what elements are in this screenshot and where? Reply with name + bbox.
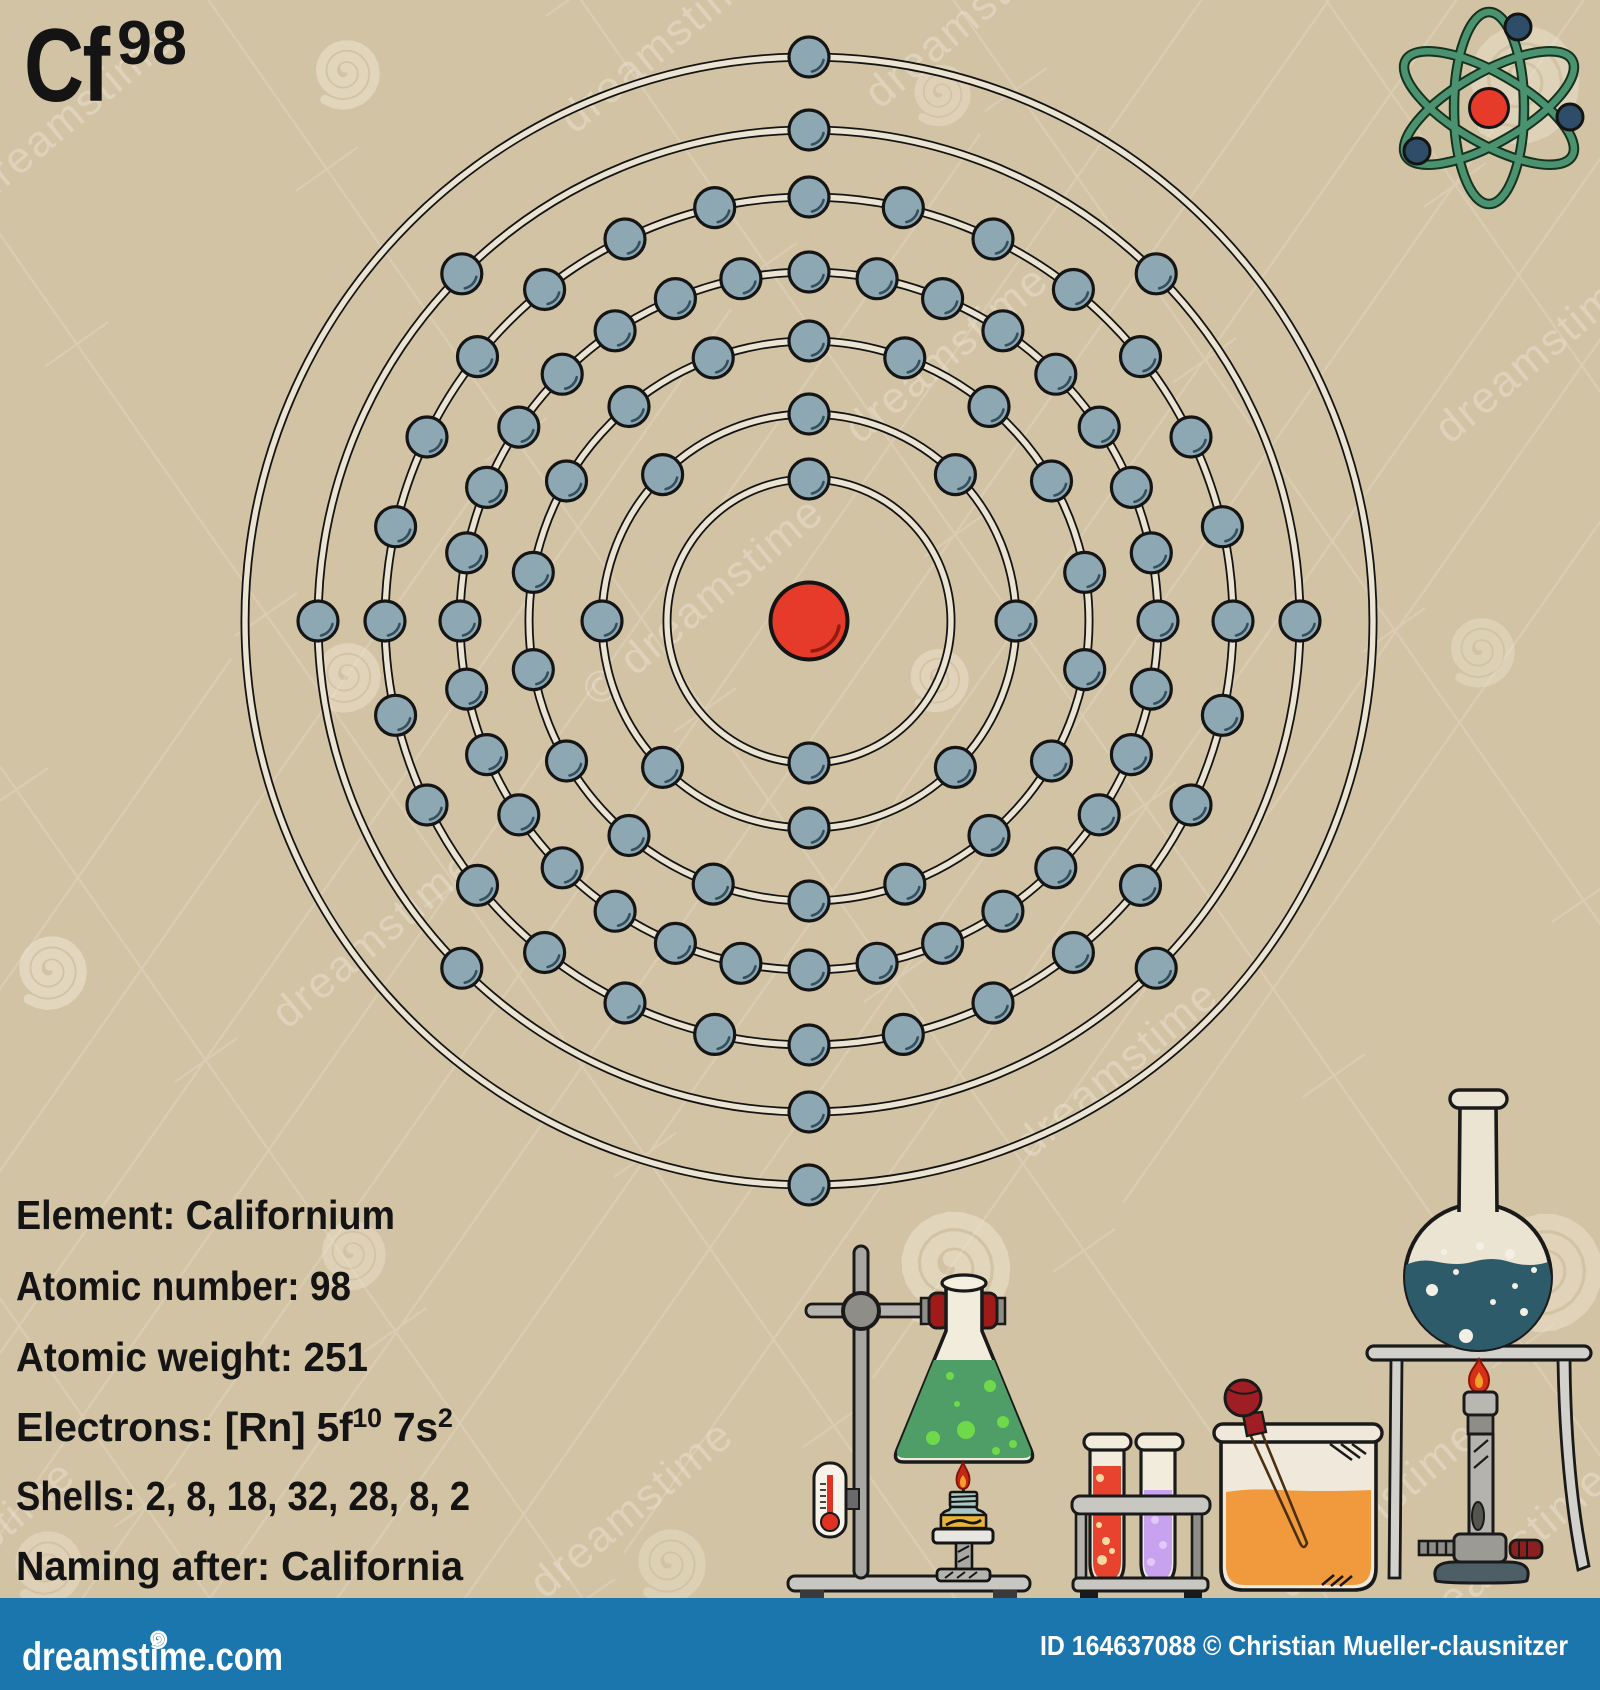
svg-text:Atomic weight: 251: Atomic weight: 251 (16, 1334, 368, 1380)
svg-text:Naming after: California: Naming after: California (16, 1543, 464, 1589)
svg-text:Shells: 2, 8, 18, 32, 28, 8, 2: Shells: 2, 8, 18, 32, 28, 8, 2 (16, 1473, 470, 1519)
svg-text:Element: Californium: Element: Californium (16, 1192, 395, 1238)
svg-text:Electrons: [Rn] 5f10 7s2: Electrons: [Rn] 5f10 7s2 (16, 1403, 453, 1450)
svg-text:ID 164637088 © Christian Muell: ID 164637088 © Christian Mueller-clausni… (1040, 1630, 1568, 1661)
svg-text:Cf: Cf (24, 7, 111, 123)
svg-text:98: 98 (117, 9, 187, 78)
svg-text:Atomic number: 98: Atomic number: 98 (16, 1263, 351, 1309)
